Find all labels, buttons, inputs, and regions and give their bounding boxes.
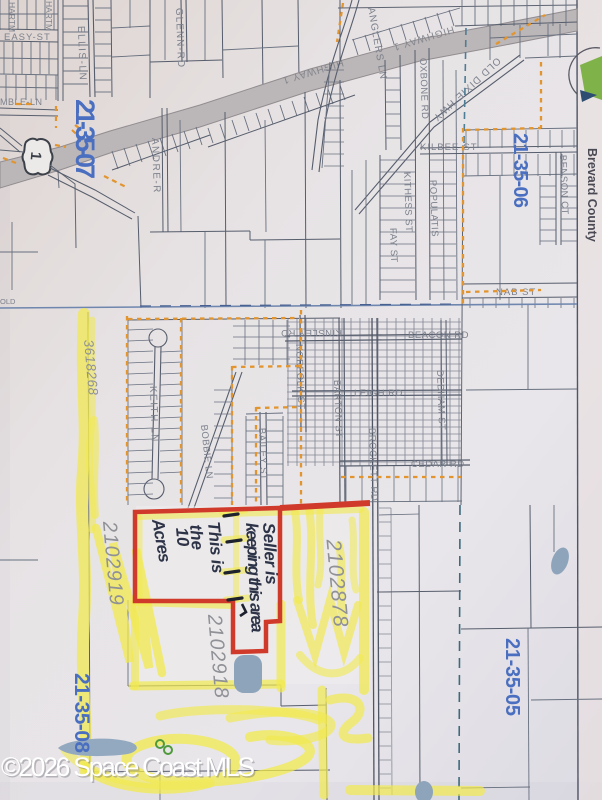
svg-text:KILBEE-ST: KILBEE-ST (420, 142, 478, 153)
svg-text:FAY ST: FAY ST (387, 228, 399, 263)
svg-text:MBLE-LN: MBLE-LN (0, 97, 43, 107)
svg-text:1: 1 (27, 151, 45, 161)
svg-text:NORFOLK ST: NORFOLK ST (293, 344, 306, 410)
svg-text:GLENN-RD: GLENN-RD (173, 8, 186, 69)
svg-text:21-35-08: 21-35-08 (70, 673, 93, 753)
svg-text:EASY-ST: EASY-ST (4, 32, 51, 43)
svg-text:Brevard County: Brevard County (585, 148, 599, 242)
svg-text:21-35-07: 21-35-07 (70, 99, 100, 179)
svg-text:BENSON CT: BENSON CT (557, 155, 570, 215)
svg-text:21-35-05: 21-35-05 (501, 638, 523, 716)
svg-text:HARTM: HARTM (7, 2, 17, 32)
svg-text:POPULATIS: POPULATIS (427, 180, 440, 237)
svg-text:BAILEY ST: BAILEY ST (256, 428, 269, 481)
svg-text:DEDHAM ST: DEDHAM ST (434, 370, 447, 431)
svg-text:NAB ST: NAB ST (496, 287, 536, 298)
svg-text:ANDRE-R: ANDRE-R (149, 138, 162, 194)
svg-text:ELLIS-LN: ELLIS-LN (75, 26, 88, 82)
svg-text:BEACON RD: BEACON RD (408, 330, 469, 341)
svg-text:BARTON ST: BARTON ST (331, 380, 344, 439)
svg-text:KINSLEY RD: KINSLEY RD (281, 327, 342, 338)
svg-text:©2026 Space Coast MLS: ©2026 Space Coast MLS (1, 752, 255, 782)
svg-text:LEIGH RD: LEIGH RD (354, 388, 403, 399)
svg-text:21-35-06: 21-35-06 (509, 133, 531, 208)
svg-text:OXBONE RD: OXBONE RD (417, 58, 430, 120)
svg-text:CEDAR RD: CEDAR RD (411, 459, 465, 470)
svg-text:10: 10 (172, 527, 193, 548)
svg-text:HARTM: HARTM (44, 1, 54, 31)
svg-text:KEITH LN: KEITH LN (147, 386, 160, 443)
svg-text:OLD: OLD (0, 297, 16, 306)
svg-text:KITHESS ST: KITHESS ST (401, 172, 414, 233)
